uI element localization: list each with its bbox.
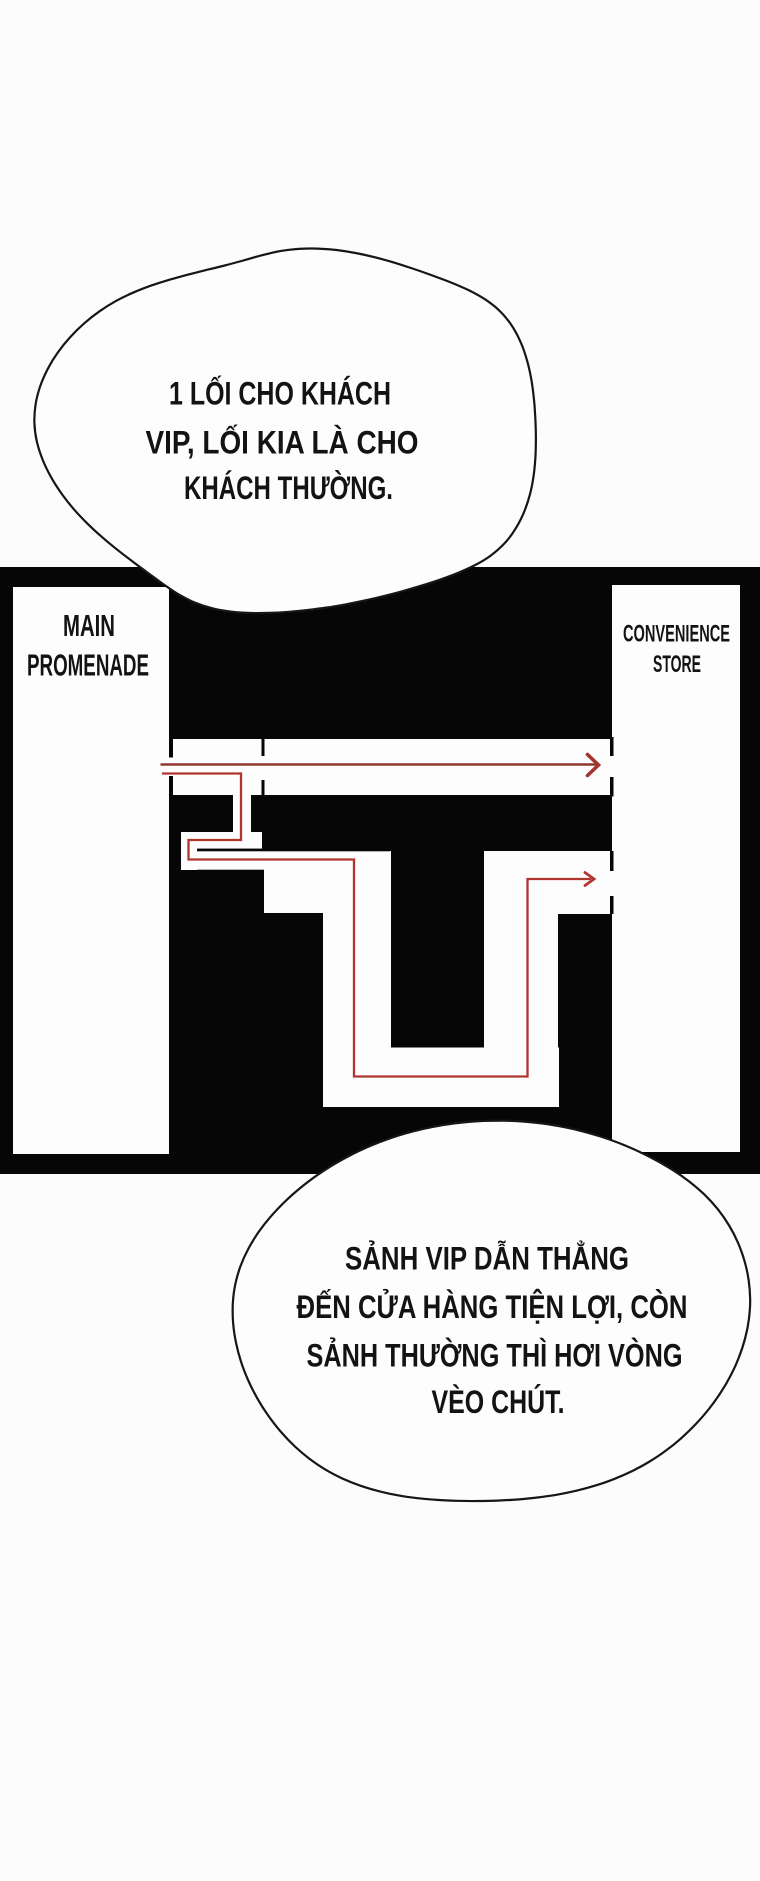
- svg-text:MAIN: MAIN: [63, 608, 115, 643]
- svg-text:SẢNH THƯỜNG THÌ HƠI VÒNG: SẢNH THƯỜNG THÌ HƠI VÒNG: [307, 1338, 683, 1374]
- svg-text:VIP, LỐI KIA LÀ CHO: VIP, LỐI KIA LÀ CHO: [146, 425, 419, 461]
- svg-text:VÈO CHÚT.: VÈO CHÚT.: [432, 1384, 565, 1420]
- svg-text:ĐẾN CỬA HÀNG TIỆN LỢI, CÒN: ĐẾN CỬA HÀNG TIỆN LỢI, CÒN: [297, 1289, 688, 1325]
- svg-text:KHÁCH THƯỜNG.: KHÁCH THƯỜNG.: [184, 470, 393, 506]
- svg-text:1 LỐI CHO KHÁCH: 1 LỐI CHO KHÁCH: [169, 376, 391, 412]
- svg-text:CONVENIENCE: CONVENIENCE: [623, 621, 730, 648]
- svg-text:PROMENADE: PROMENADE: [27, 648, 149, 683]
- svg-text:SẢNH VIP DẪN THẲNG: SẢNH VIP DẪN THẲNG: [345, 1241, 629, 1277]
- svg-text:STORE: STORE: [653, 651, 701, 678]
